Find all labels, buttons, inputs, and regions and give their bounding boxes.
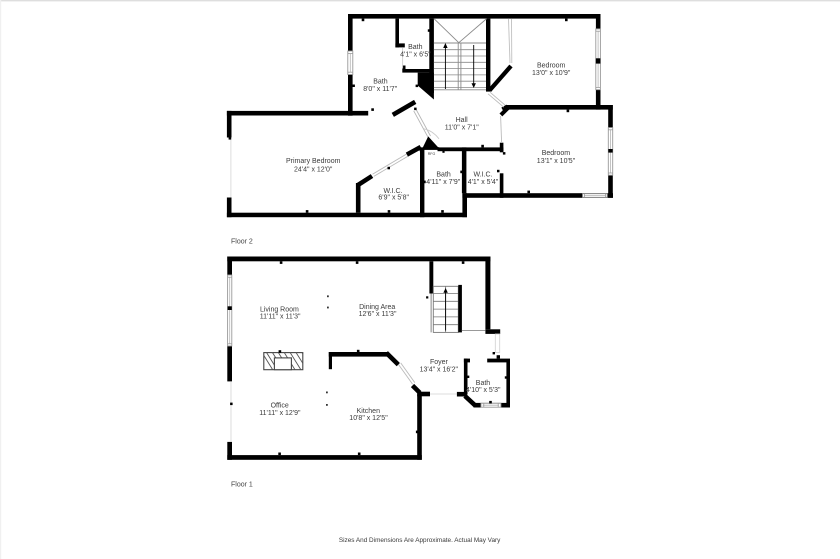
- svg-text:11'11" x 11'3": 11'11" x 11'3": [260, 313, 301, 320]
- svg-text:4'10" x 5'3": 4'10" x 5'3": [466, 387, 501, 394]
- svg-text:Kitchen: Kitchen: [357, 408, 380, 415]
- svg-text:Primary Bedroom: Primary Bedroom: [286, 158, 341, 165]
- svg-text:4'11" x 7'9": 4'11" x 7'9": [426, 179, 460, 186]
- svg-text:6'9" x 5'8": 6'9" x 5'8": [378, 195, 409, 202]
- svg-text:Office: Office: [271, 403, 289, 410]
- svg-text:11'0" x 7'1": 11'0" x 7'1": [445, 125, 479, 132]
- svg-text:Living Room: Living Room: [260, 306, 299, 313]
- svg-text:Bath: Bath: [436, 172, 451, 179]
- svg-text:24'4" x 12'0": 24'4" x 12'0": [294, 167, 333, 174]
- svg-text:13'0" x 10'9": 13'0" x 10'9": [532, 70, 571, 77]
- svg-text:4'1" x 5'4": 4'1" x 5'4": [468, 179, 499, 186]
- svg-text:8'0" x 11'7": 8'0" x 11'7": [363, 86, 397, 93]
- svg-text:13'4" x 16'2": 13'4" x 16'2": [420, 366, 459, 373]
- svg-text:Floor 1: Floor 1: [231, 482, 253, 489]
- svg-text:Bath: Bath: [476, 380, 491, 387]
- svg-text:RFG: RFG: [428, 152, 436, 156]
- svg-text:11'11" x 12'9": 11'11" x 12'9": [259, 410, 301, 417]
- svg-text:Bath: Bath: [408, 44, 423, 51]
- svg-text:12'6" x 11'3": 12'6" x 11'3": [359, 311, 397, 318]
- svg-text:10'8" x 12'5": 10'8" x 12'5": [349, 415, 388, 422]
- svg-text:W.I.C.: W.I.C.: [473, 171, 492, 178]
- svg-text:Floor 2: Floor 2: [231, 239, 253, 246]
- svg-text:Bedroom: Bedroom: [537, 63, 566, 70]
- svg-text:Sizes And Dimensions Are Appro: Sizes And Dimensions Are Approximate. Ac…: [339, 537, 501, 544]
- svg-text:Foyer: Foyer: [430, 359, 449, 366]
- svg-text:4'1" x 6'5": 4'1" x 6'5": [400, 52, 431, 59]
- svg-text:Hall: Hall: [456, 117, 469, 124]
- svg-text:13'1" x 10'5": 13'1" x 10'5": [537, 158, 576, 165]
- svg-text:Bedroom: Bedroom: [542, 150, 571, 157]
- svg-text:Bath: Bath: [373, 78, 388, 85]
